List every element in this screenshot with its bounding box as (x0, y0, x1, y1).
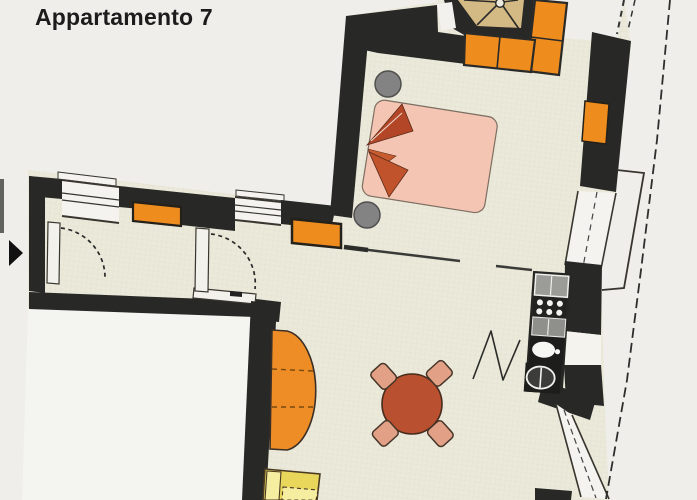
svg-text:Appartamento 7: Appartamento 7 (35, 4, 213, 30)
